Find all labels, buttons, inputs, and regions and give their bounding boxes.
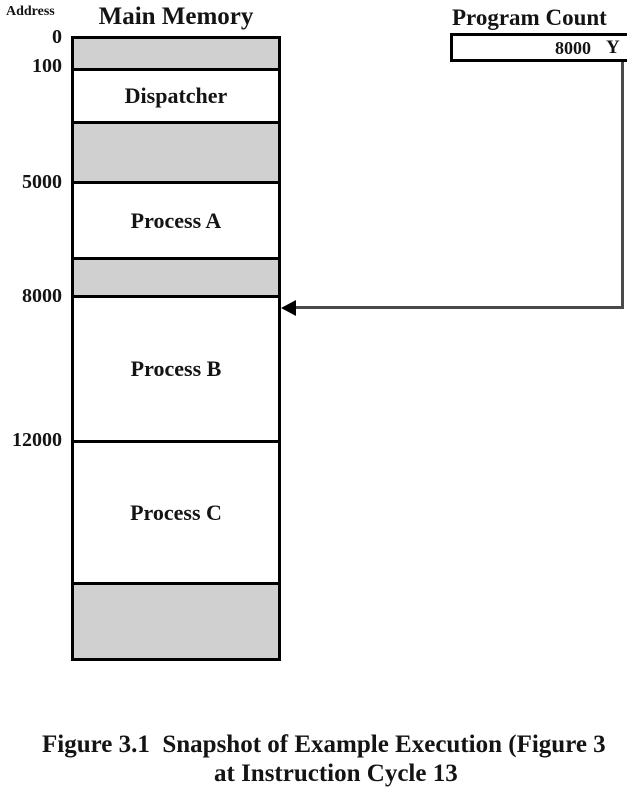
address-tick-5000: 5000 <box>0 172 62 192</box>
left-arrowhead-icon <box>281 300 296 316</box>
program-counter-title: Program Count <box>452 5 607 31</box>
program-counter-partial-glyph: Y <box>606 37 620 59</box>
memory-region-label: Process C <box>130 500 222 526</box>
address-tick-12000: 12000 <box>0 430 62 450</box>
memory-region-label: Process B <box>131 356 222 382</box>
memory-region-process-b: Process B <box>74 295 278 440</box>
pc-connector-horizontal-line <box>294 306 624 309</box>
address-tick-0: 0 <box>0 27 62 47</box>
memory-region-process-c: Process C <box>74 440 278 582</box>
memory-region-process-a: Process A <box>74 181 278 257</box>
program-counter-value: 8000 <box>555 38 591 59</box>
figure-caption-line1: Figure 3.1 Snapshot of Example Execution… <box>42 731 606 759</box>
address-tick-100: 100 <box>0 56 62 76</box>
memory-region-label: Process A <box>131 208 222 234</box>
memory-region-label: Dispatcher <box>125 83 228 109</box>
pc-connector-vertical-line <box>621 62 624 308</box>
address-column-label: Address <box>6 4 55 20</box>
program-counter-box: 8000 Y <box>450 33 627 62</box>
memory-region-dispatcher: Dispatcher <box>74 68 278 121</box>
figure-caption-line2: at Instruction Cycle 13 <box>214 760 458 788</box>
memory-region-free-1 <box>74 121 278 181</box>
main-memory-title: Main Memory <box>71 3 281 31</box>
memory-region-reserved-bottom <box>74 582 278 658</box>
figure-canvas: Address 0 100 5000 8000 12000 Main Memor… <box>0 0 627 792</box>
address-tick-8000: 8000 <box>0 286 62 306</box>
memory-region-free-2 <box>74 257 278 295</box>
memory-region-reserved-top <box>74 39 278 68</box>
main-memory-box: Dispatcher Process A Process B Process C <box>71 36 281 661</box>
